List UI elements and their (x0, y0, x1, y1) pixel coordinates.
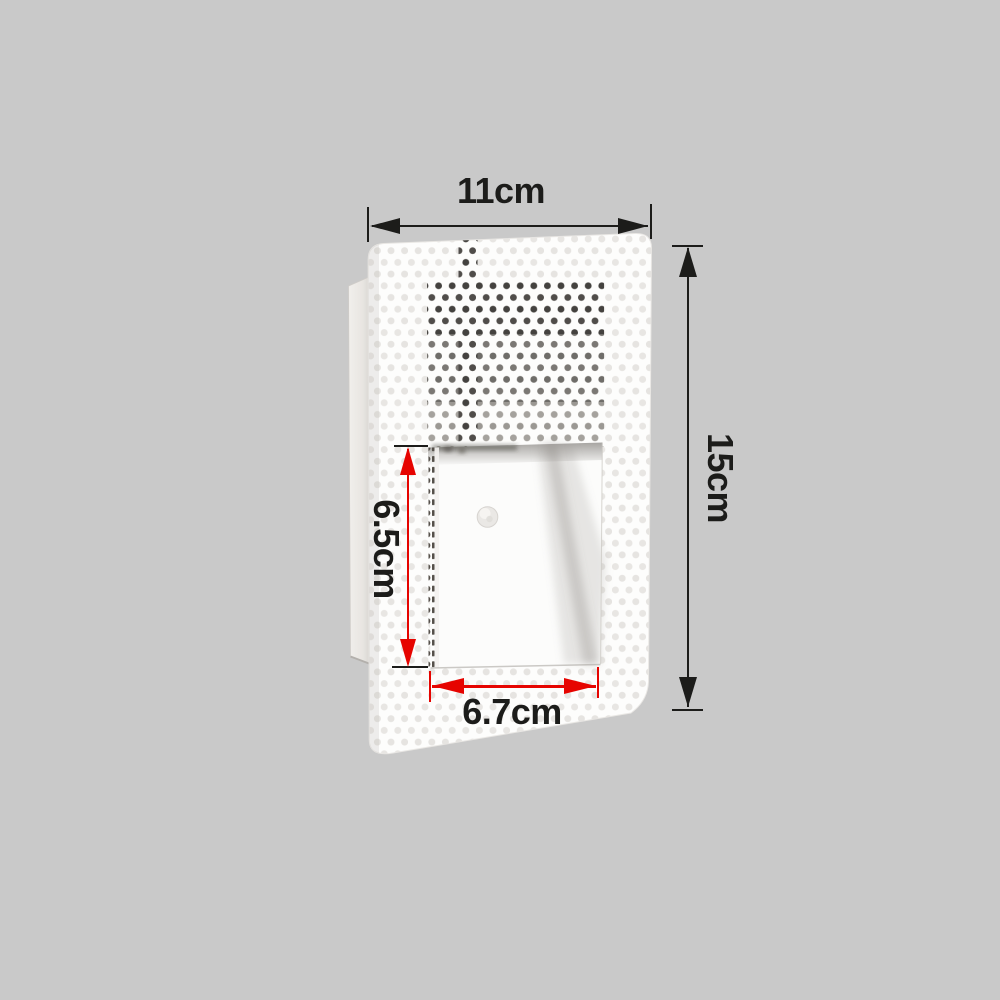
light-opening (428, 443, 606, 669)
perforation-pattern-dark-mid (427, 334, 604, 402)
opening-cut-edge (429, 448, 435, 668)
dim-opening-height-line (407, 449, 409, 664)
dim-height-extension-bottom (672, 709, 703, 711)
dim-opening-width-label: 6.7cm (462, 691, 562, 733)
dim-height-label: 15cm (699, 433, 741, 523)
mounting-box-side (349, 277, 370, 664)
dim-width-arrowhead-left (370, 218, 400, 234)
dim-width-line (372, 225, 648, 227)
motion-sensor-dot (477, 507, 498, 528)
dim-opening-height-label: 6.5cm (365, 499, 407, 599)
perforation-pattern-dark-top (427, 282, 604, 334)
opening-edge-mark (443, 446, 453, 452)
dim-width-extension-left (367, 207, 369, 242)
dim-opening-height-arrowhead-top (400, 447, 416, 475)
product-dimension-diagram: 11cm 15cm 6.5cm 6.7cm (0, 0, 1000, 1000)
dim-opening-width-tick-right (597, 667, 599, 698)
dim-height-line (687, 248, 689, 707)
perforation-dark-column (459, 240, 478, 447)
perforation-pattern-dark-low (427, 402, 604, 447)
dim-opening-height-arrowhead-bottom (400, 639, 416, 667)
opening-left-lip (435, 448, 440, 668)
dim-height-arrowhead-bottom (679, 677, 697, 707)
step-light-product-image (0, 0, 1000, 1000)
dim-opening-width-arrowhead-right (564, 678, 596, 694)
dim-width-label: 11cm (457, 170, 545, 212)
opening-edge-mark (458, 448, 466, 453)
dim-width-arrowhead-right (618, 218, 648, 234)
dim-opening-width-arrowhead-left (432, 678, 464, 694)
dim-width-extension-right (650, 204, 652, 239)
dim-height-arrowhead-top (679, 247, 697, 277)
